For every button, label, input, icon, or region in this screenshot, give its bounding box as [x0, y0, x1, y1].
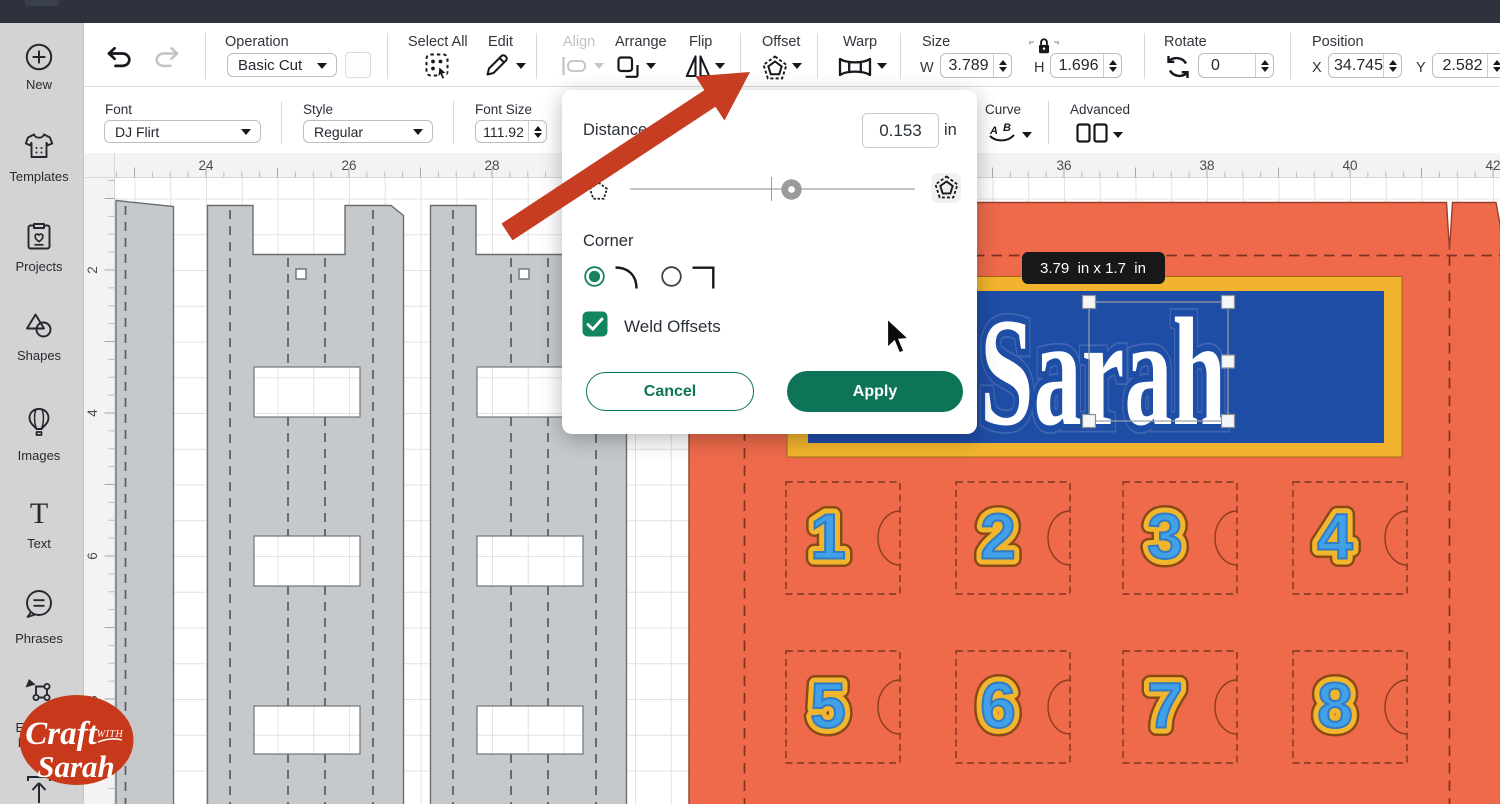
svg-text:36: 36: [1056, 158, 1071, 173]
svg-text:8: 8: [1317, 670, 1353, 742]
svg-text:26: 26: [341, 158, 356, 173]
svg-text:5: 5: [810, 670, 846, 742]
svg-text:6: 6: [85, 552, 100, 560]
svg-text:T: T: [30, 497, 48, 527]
svg-text:B: B: [1003, 123, 1011, 134]
svg-text:24: 24: [198, 158, 214, 173]
svg-text:A: A: [989, 125, 998, 137]
svg-text:Sarah: Sarah: [37, 749, 115, 784]
svg-text:6: 6: [980, 670, 1016, 742]
svg-text:4: 4: [85, 409, 100, 417]
svg-text:7: 7: [1147, 670, 1183, 742]
svg-text:3: 3: [1147, 501, 1183, 573]
svg-text:2: 2: [85, 266, 100, 274]
svg-text:1: 1: [810, 501, 846, 573]
svg-text:Sarah: Sarah: [980, 286, 1226, 458]
svg-text:38: 38: [1199, 158, 1214, 173]
svg-text:2: 2: [980, 501, 1016, 573]
svg-text:Craft: Craft: [25, 716, 97, 752]
svg-text:42: 42: [1485, 158, 1500, 173]
svg-text:3.79 in x 1.7 in: 3.79 in x 1.7 in: [1040, 260, 1146, 277]
svg-text:4: 4: [1317, 501, 1353, 573]
svg-text:40: 40: [1342, 158, 1357, 173]
